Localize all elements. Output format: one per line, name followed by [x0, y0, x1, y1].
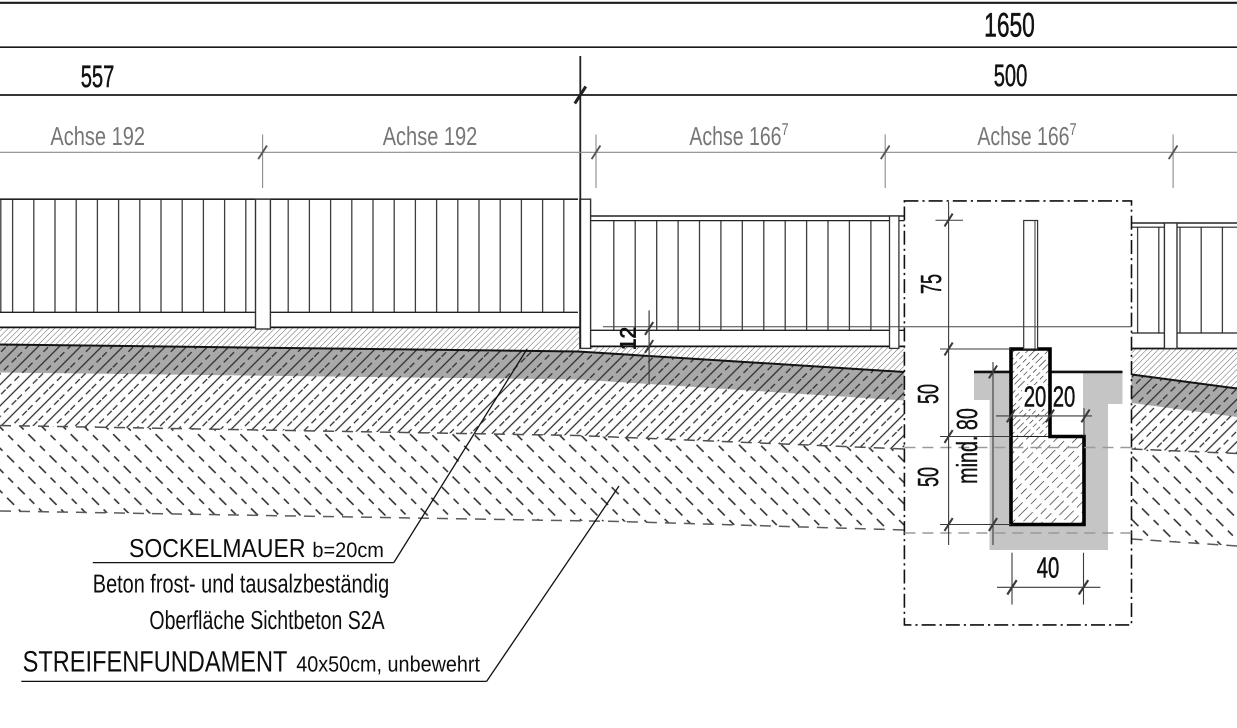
svg-text:Achse 1667: Achse 1667 — [689, 120, 788, 151]
svg-text:40x50cm, unbewehrt: 40x50cm, unbewehrt — [296, 652, 480, 677]
svg-text:1650: 1650 — [984, 7, 1035, 45]
svg-text:50: 50 — [913, 467, 945, 487]
svg-text:Beton frost- und tausalzbestän: Beton frost- und tausalzbeständig — [93, 569, 389, 599]
svg-text:75: 75 — [916, 274, 948, 294]
svg-text:b=20cm: b=20cm — [312, 539, 384, 562]
svg-text:50: 50 — [913, 384, 945, 404]
svg-text:Achse 192: Achse 192 — [50, 121, 145, 151]
svg-text:STREIFENFUNDAMENT: STREIFENFUNDAMENT — [23, 646, 288, 679]
svg-text:500: 500 — [994, 58, 1028, 93]
svg-text:SOCKELMAUER: SOCKELMAUER — [129, 533, 305, 563]
svg-text:Achse 1667: Achse 1667 — [977, 120, 1076, 151]
svg-text:mind. 80: mind. 80 — [952, 408, 984, 484]
svg-text:20: 20 — [1053, 382, 1076, 414]
svg-text:20: 20 — [1024, 382, 1047, 414]
svg-text:40: 40 — [1037, 553, 1060, 585]
svg-text:557: 557 — [81, 59, 115, 94]
svg-text:12: 12 — [616, 327, 641, 350]
svg-text:Achse 192: Achse 192 — [383, 121, 478, 151]
svg-text:Oberfläche Sichtbeton S2A: Oberfläche Sichtbeton S2A — [149, 605, 385, 635]
